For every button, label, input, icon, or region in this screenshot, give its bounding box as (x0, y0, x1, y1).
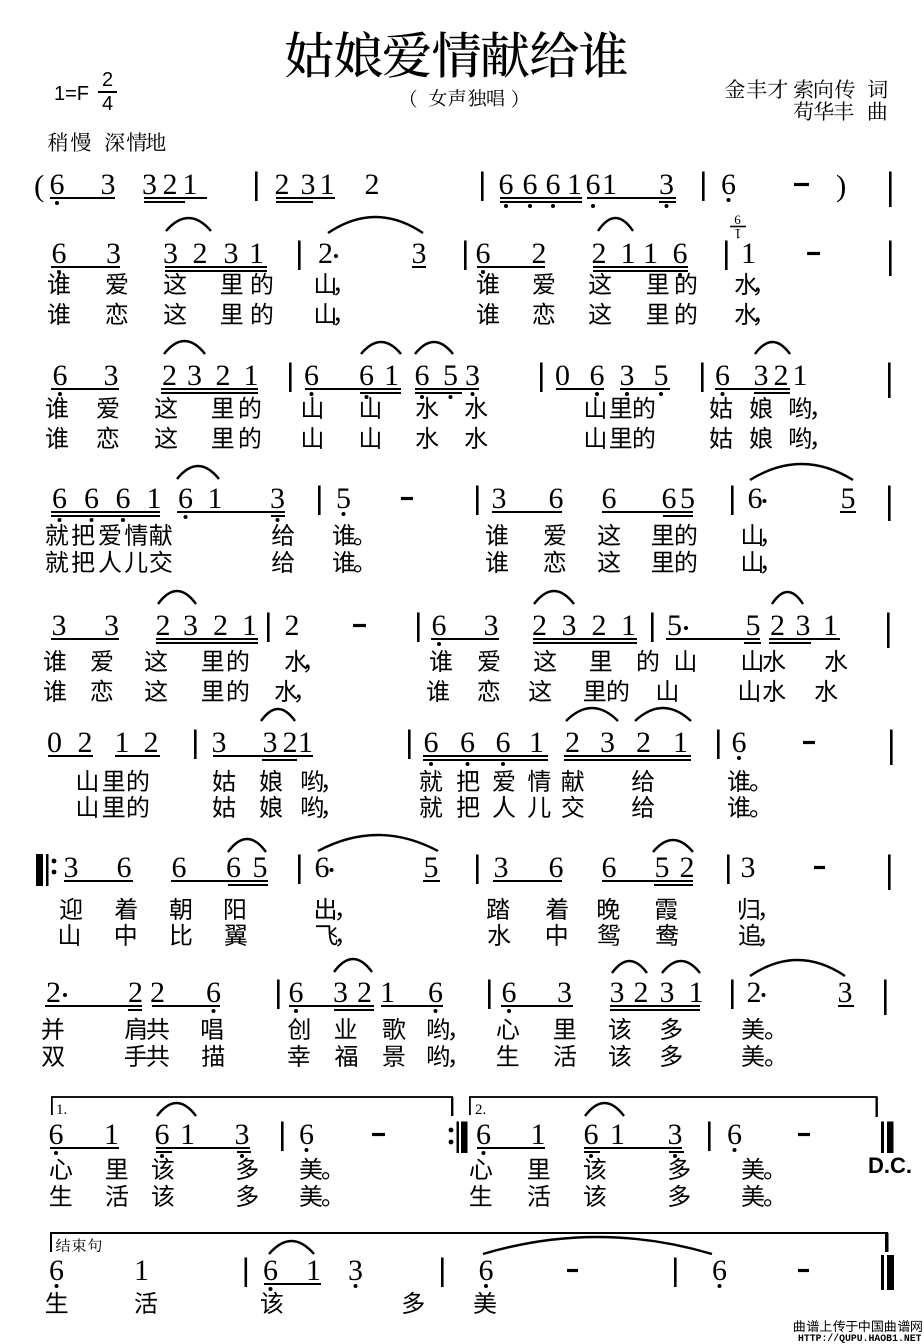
svg-text:6: 6 (53, 359, 68, 392)
svg-text:3: 3 (754, 359, 769, 392)
svg-text:3: 3 (270, 482, 285, 515)
svg-text:6: 6 (499, 168, 514, 201)
svg-text:2.: 2. (475, 1102, 486, 1118)
svg-text:3: 3 (187, 359, 202, 392)
svg-text:2: 2 (565, 726, 580, 759)
svg-text:2: 2 (747, 976, 762, 1009)
svg-text:2: 2 (216, 359, 231, 392)
svg-text:6: 6 (586, 168, 601, 201)
svg-text:3: 3 (412, 237, 427, 270)
svg-text:6: 6 (84, 482, 99, 515)
svg-text:3: 3 (838, 976, 853, 1009)
svg-text:3: 3 (741, 851, 756, 884)
svg-text:2: 2 (365, 168, 380, 201)
svg-text:3: 3 (142, 168, 157, 201)
svg-text:1=F: 1=F (54, 83, 89, 105)
svg-text:6: 6 (49, 1254, 64, 1287)
svg-text:3: 3 (64, 851, 79, 884)
svg-text:1: 1 (621, 237, 636, 270)
svg-text:5: 5 (336, 482, 351, 515)
svg-text:1: 1 (621, 609, 636, 642)
svg-text:3: 3 (104, 359, 119, 392)
svg-text:2: 2 (636, 726, 651, 759)
svg-text:3: 3 (620, 359, 635, 392)
svg-text:2: 2 (774, 359, 789, 392)
svg-text:3: 3 (212, 726, 227, 759)
svg-text:6: 6 (502, 976, 517, 1009)
svg-text:2: 2 (592, 609, 607, 642)
svg-text:(: ( (34, 168, 44, 203)
svg-text:3: 3 (659, 168, 674, 201)
svg-text:1: 1 (380, 976, 395, 1009)
svg-text:6: 6 (734, 212, 741, 227)
svg-text:6: 6 (172, 851, 187, 884)
svg-text:1: 1 (529, 726, 544, 759)
svg-text:6: 6 (155, 1118, 170, 1151)
svg-text:3: 3 (660, 976, 675, 1009)
svg-text:1: 1 (823, 609, 838, 642)
svg-text:6: 6 (52, 237, 67, 270)
svg-text:1: 1 (249, 237, 264, 270)
svg-text:6: 6 (289, 976, 304, 1009)
svg-text:3: 3 (668, 1118, 683, 1151)
svg-text:5: 5 (443, 359, 458, 392)
svg-text:6: 6 (546, 168, 561, 201)
svg-text:): ) (836, 168, 846, 203)
svg-text:1: 1 (689, 976, 704, 1009)
svg-text:6: 6 (721, 168, 736, 201)
svg-text:6: 6 (299, 1118, 314, 1151)
svg-text:5: 5 (655, 851, 670, 884)
svg-text:6: 6 (523, 168, 538, 201)
svg-text:1: 1 (741, 237, 756, 270)
svg-text:1: 1 (610, 1118, 625, 1151)
svg-text:5: 5 (841, 482, 856, 515)
svg-text:1: 1 (180, 1118, 195, 1151)
svg-text:2: 2 (156, 609, 171, 642)
svg-text:3: 3 (106, 237, 121, 270)
svg-text:6: 6 (304, 359, 319, 392)
svg-text:1: 1 (244, 359, 259, 392)
svg-text:3: 3 (557, 976, 572, 1009)
svg-text:5: 5 (654, 359, 669, 392)
svg-text:2: 2 (144, 726, 159, 759)
svg-text:6: 6 (748, 482, 763, 515)
svg-text:1: 1 (567, 168, 582, 201)
svg-text:2: 2 (357, 976, 372, 1009)
svg-text:1: 1 (104, 1118, 119, 1151)
svg-text:2: 2 (285, 609, 300, 642)
svg-text:1.: 1. (56, 1102, 67, 1118)
svg-text:6: 6 (315, 851, 330, 884)
svg-text:3: 3 (600, 726, 615, 759)
svg-text:6: 6 (732, 726, 747, 759)
svg-text:6: 6 (206, 976, 221, 1009)
svg-text:6: 6 (549, 482, 564, 515)
svg-text:3: 3 (104, 609, 119, 642)
svg-text:6: 6 (424, 726, 439, 759)
svg-text:1: 1 (115, 726, 130, 759)
svg-text:6: 6 (662, 482, 677, 515)
svg-text:3: 3 (492, 482, 507, 515)
svg-text:6: 6 (590, 359, 605, 392)
svg-text:6: 6 (602, 482, 617, 515)
svg-text:6: 6 (226, 851, 241, 884)
svg-text:2: 2 (213, 609, 228, 642)
svg-text:3: 3 (163, 237, 178, 270)
svg-text:1: 1 (298, 726, 313, 759)
svg-text:3: 3 (610, 976, 625, 1009)
svg-text:2: 2 (150, 976, 165, 1009)
svg-text:2: 2 (283, 726, 298, 759)
svg-text:6: 6 (476, 237, 491, 270)
svg-text:1: 1 (208, 482, 223, 515)
svg-text:3: 3 (224, 237, 239, 270)
svg-text:1: 1 (147, 482, 162, 515)
svg-text:2: 2 (770, 609, 785, 642)
svg-text:1: 1 (673, 726, 688, 759)
svg-text:2: 2 (318, 237, 333, 270)
svg-text:6: 6 (479, 1254, 494, 1287)
svg-text:3: 3 (465, 359, 480, 392)
svg-text:6: 6 (50, 168, 65, 201)
svg-text:6: 6 (415, 359, 430, 392)
svg-text:3: 3 (263, 726, 278, 759)
svg-text:4: 4 (102, 93, 113, 115)
svg-text:2: 2 (102, 69, 113, 91)
svg-text:6: 6 (116, 482, 131, 515)
svg-text:D.C.: D.C. (868, 1153, 912, 1178)
svg-text:2: 2 (46, 976, 61, 1009)
svg-text:2: 2 (193, 237, 208, 270)
svg-text:6: 6 (549, 851, 564, 884)
svg-text:2: 2 (163, 168, 178, 201)
svg-text:0: 0 (555, 359, 570, 392)
svg-text:6: 6 (460, 726, 475, 759)
svg-text:1: 1 (793, 359, 808, 392)
svg-text:6: 6 (117, 851, 132, 884)
svg-text:1: 1 (643, 237, 658, 270)
svg-text:6: 6 (476, 1118, 491, 1151)
svg-text:2: 2 (275, 168, 290, 201)
svg-text:2: 2 (634, 976, 649, 1009)
svg-text:6: 6 (432, 609, 447, 642)
svg-text:0: 0 (47, 726, 62, 759)
svg-text:3: 3 (348, 1254, 363, 1287)
svg-text:6: 6 (49, 1118, 64, 1151)
svg-text:6: 6 (673, 237, 688, 270)
svg-text:6: 6 (263, 1254, 278, 1287)
svg-text:6: 6 (602, 851, 617, 884)
svg-text:3: 3 (333, 976, 348, 1009)
svg-text:3: 3 (494, 851, 509, 884)
svg-text:5: 5 (253, 851, 268, 884)
svg-text:1: 1 (306, 1254, 321, 1287)
svg-text:2: 2 (680, 851, 695, 884)
svg-text:6: 6 (428, 976, 443, 1009)
svg-text:5: 5 (746, 609, 761, 642)
svg-text:3: 3 (52, 609, 67, 642)
svg-text:3: 3 (183, 609, 198, 642)
svg-text:6: 6 (359, 359, 374, 392)
svg-text:1: 1 (602, 168, 617, 201)
svg-text:1: 1 (531, 1118, 546, 1151)
svg-text:1: 1 (384, 359, 399, 392)
svg-text:6: 6 (52, 482, 67, 515)
svg-text:3: 3 (235, 1118, 250, 1151)
svg-text:2: 2 (128, 976, 143, 1009)
svg-text:1: 1 (134, 1254, 149, 1287)
svg-text:2: 2 (78, 726, 93, 759)
svg-text:3: 3 (301, 168, 316, 201)
svg-text:1: 1 (242, 609, 257, 642)
svg-text:1: 1 (320, 168, 335, 201)
svg-text:3: 3 (796, 609, 811, 642)
svg-text:6: 6 (712, 1254, 727, 1287)
svg-text:5: 5 (667, 609, 682, 642)
svg-text:2: 2 (532, 237, 547, 270)
svg-text:2: 2 (532, 609, 547, 642)
svg-text:6: 6 (496, 726, 511, 759)
svg-text:6: 6 (727, 1118, 742, 1151)
svg-text:3: 3 (101, 168, 116, 201)
svg-text:3: 3 (484, 609, 499, 642)
svg-text:6: 6 (178, 482, 193, 515)
svg-text:HTTP://QUPU.HAOB1.NET: HTTP://QUPU.HAOB1.NET (798, 1333, 922, 1344)
svg-text:2: 2 (162, 359, 177, 392)
svg-text:3: 3 (562, 609, 577, 642)
svg-text:5: 5 (424, 851, 439, 884)
svg-text:5: 5 (680, 482, 695, 515)
svg-text:2: 2 (592, 237, 607, 270)
svg-text:6: 6 (715, 359, 730, 392)
svg-text:1: 1 (183, 168, 198, 201)
svg-text:6: 6 (584, 1118, 599, 1151)
